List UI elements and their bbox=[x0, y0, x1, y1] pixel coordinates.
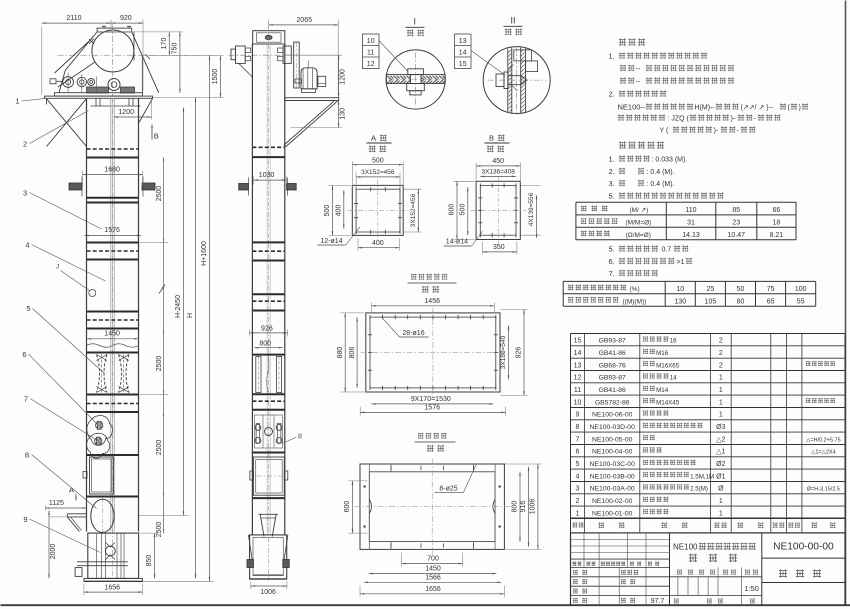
svg-text:7: 7 bbox=[576, 436, 580, 443]
svg-text:2: 2 bbox=[23, 140, 27, 149]
svg-text:10: 10 bbox=[574, 399, 582, 406]
svg-text:11: 11 bbox=[574, 387, 581, 394]
svg-text:806: 806 bbox=[349, 347, 356, 359]
svg-text:9: 9 bbox=[576, 412, 580, 419]
svg-text:31: 31 bbox=[687, 220, 695, 227]
svg-text:)-: )- bbox=[731, 116, 736, 123]
svg-text:1566: 1566 bbox=[425, 574, 441, 581]
svg-text:NE100-00-00: NE100-00-00 bbox=[773, 542, 834, 553]
svg-text:28-ø16: 28-ø16 bbox=[402, 330, 424, 337]
svg-text:15: 15 bbox=[574, 338, 582, 345]
svg-text:1: 1 bbox=[719, 387, 723, 394]
svg-text:6: 6 bbox=[22, 350, 26, 359]
svg-text:): ) bbox=[799, 105, 801, 112]
svg-text:3.: 3. bbox=[609, 179, 615, 188]
svg-text:1030: 1030 bbox=[259, 172, 275, 179]
svg-text:Ø=H-3.15/2.5: Ø=H-3.15/2.5 bbox=[807, 487, 840, 493]
svg-text:7: 7 bbox=[24, 395, 28, 404]
svg-text:2500: 2500 bbox=[156, 356, 163, 372]
svg-text:Ø: Ø bbox=[718, 486, 724, 493]
svg-text:0.7: 0.7 bbox=[662, 247, 672, 254]
svg-text:5.: 5. bbox=[609, 192, 615, 201]
svg-text:500: 500 bbox=[460, 204, 467, 216]
svg-text:10: 10 bbox=[367, 38, 375, 45]
svg-text:9: 9 bbox=[23, 515, 27, 524]
svg-text:600: 600 bbox=[344, 501, 351, 513]
svg-text:850: 850 bbox=[146, 555, 153, 567]
svg-text:Ø2: Ø2 bbox=[716, 461, 725, 468]
svg-text:H: H bbox=[187, 313, 194, 318]
svg-text:80: 80 bbox=[737, 298, 745, 305]
svg-text:△=H/0.2+5.75: △=H/0.2+5.75 bbox=[806, 437, 841, 443]
svg-text:10.47: 10.47 bbox=[728, 232, 746, 239]
svg-text:I: I bbox=[413, 17, 416, 27]
svg-text:3X180=540: 3X180=540 bbox=[500, 335, 507, 369]
svg-text:1125: 1125 bbox=[49, 500, 64, 507]
svg-text:1.: 1. bbox=[609, 52, 615, 61]
svg-text:1656: 1656 bbox=[425, 586, 441, 593]
svg-text:2.: 2. bbox=[609, 90, 615, 99]
svg-text:3X136=408: 3X136=408 bbox=[481, 168, 515, 175]
svg-text:NE100: NE100 bbox=[673, 543, 698, 552]
svg-text:M14: M14 bbox=[656, 387, 669, 394]
svg-text:3: 3 bbox=[23, 189, 27, 198]
svg-text:2: 2 bbox=[719, 362, 723, 369]
svg-text:NE100-05-00: NE100-05-00 bbox=[592, 436, 633, 443]
svg-text:1: 1 bbox=[576, 510, 580, 517]
svg-text:3X152=456: 3X152=456 bbox=[410, 193, 417, 227]
svg-text:600: 600 bbox=[449, 204, 456, 216]
svg-text:△1=△2X4: △1=△2X4 bbox=[811, 450, 836, 456]
svg-text:GB93-87: GB93-87 bbox=[599, 375, 626, 382]
svg-text:8.21: 8.21 bbox=[770, 232, 784, 239]
svg-text:>1: >1 bbox=[677, 259, 685, 266]
svg-text:NE100-04-00: NE100-04-00 bbox=[592, 449, 633, 456]
svg-text:5.: 5. bbox=[609, 245, 615, 254]
svg-text:((M)(M)): ((M)(M)) bbox=[623, 298, 647, 305]
svg-text:55: 55 bbox=[797, 298, 805, 305]
svg-text:2.5(M): 2.5(M) bbox=[690, 486, 708, 493]
svg-text:350: 350 bbox=[493, 244, 505, 251]
svg-text:4: 4 bbox=[25, 241, 29, 250]
svg-text:NE100-02-00: NE100-02-00 bbox=[592, 498, 633, 505]
svg-text:700: 700 bbox=[427, 556, 439, 563]
svg-text:1: 1 bbox=[719, 375, 723, 382]
svg-text:--: -- bbox=[636, 66, 641, 73]
svg-text:NE100--: NE100-- bbox=[618, 103, 646, 112]
svg-text:23: 23 bbox=[732, 220, 740, 227]
svg-text:1450: 1450 bbox=[104, 331, 120, 338]
svg-text:66: 66 bbox=[773, 207, 781, 214]
svg-text:130: 130 bbox=[674, 298, 686, 305]
svg-text:800: 800 bbox=[512, 501, 519, 513]
svg-text:2065: 2065 bbox=[296, 17, 312, 24]
svg-text:1: 1 bbox=[719, 399, 723, 406]
svg-text:B: B bbox=[154, 132, 159, 141]
svg-text:400: 400 bbox=[336, 205, 343, 217]
svg-text:M16: M16 bbox=[656, 350, 669, 357]
svg-text:4X139=556: 4X139=556 bbox=[528, 192, 535, 226]
svg-text:500: 500 bbox=[324, 205, 331, 217]
svg-text:130: 130 bbox=[339, 108, 346, 120]
svg-text:1006: 1006 bbox=[260, 589, 276, 596]
svg-text:400: 400 bbox=[372, 240, 384, 247]
svg-text:14.13: 14.13 bbox=[682, 232, 700, 239]
svg-text:15: 15 bbox=[459, 61, 467, 68]
svg-text:GB41-86: GB41-86 bbox=[599, 387, 626, 394]
svg-text:11: 11 bbox=[367, 49, 374, 56]
svg-text:14: 14 bbox=[670, 375, 677, 382]
svg-text:110: 110 bbox=[685, 207, 696, 214]
svg-text:170: 170 bbox=[161, 38, 168, 50]
svg-text:12: 12 bbox=[574, 375, 582, 382]
svg-text:105: 105 bbox=[705, 298, 717, 305]
svg-text:8: 8 bbox=[576, 424, 580, 431]
svg-text:A: A bbox=[69, 486, 74, 495]
svg-text:14: 14 bbox=[459, 49, 467, 56]
svg-text:3X152=456: 3X152=456 bbox=[361, 169, 395, 176]
svg-text:12: 12 bbox=[367, 61, 375, 68]
svg-text:NE100-03B-00: NE100-03B-00 bbox=[590, 473, 635, 480]
svg-text:1:50: 1:50 bbox=[744, 584, 759, 593]
svg-text:1: 1 bbox=[15, 97, 19, 106]
svg-text:18: 18 bbox=[773, 220, 781, 227]
svg-text:(%): (%) bbox=[630, 286, 640, 293]
svg-text:1680: 1680 bbox=[104, 167, 120, 174]
svg-text:(Ω/M=Ø): (Ω/M=Ø) bbox=[626, 232, 651, 239]
svg-text:14: 14 bbox=[574, 350, 582, 357]
svg-text:7.: 7. bbox=[609, 269, 615, 278]
svg-text:1576: 1576 bbox=[104, 227, 120, 234]
svg-text:16: 16 bbox=[670, 338, 677, 345]
svg-text:5: 5 bbox=[576, 461, 580, 468]
svg-text:M16X65: M16X65 bbox=[656, 362, 680, 369]
svg-text:2500: 2500 bbox=[156, 186, 163, 202]
svg-text:8-ø25: 8-ø25 bbox=[439, 485, 457, 492]
svg-text:A: A bbox=[371, 134, 376, 143]
svg-text:1.: 1. bbox=[609, 155, 615, 164]
svg-text:12-ø14: 12-ø14 bbox=[320, 238, 342, 245]
svg-text:Ø3: Ø3 bbox=[716, 424, 725, 431]
svg-text:II: II bbox=[510, 16, 515, 26]
svg-text:75: 75 bbox=[767, 286, 775, 293]
svg-text:65: 65 bbox=[767, 298, 775, 305]
svg-text:GB93-87: GB93-87 bbox=[599, 338, 626, 345]
svg-text:: 0.4 (M).: : 0.4 (M). bbox=[647, 169, 675, 176]
svg-text:14-ø14: 14-ø14 bbox=[446, 239, 468, 246]
svg-text:GB68-76: GB68-76 bbox=[599, 362, 626, 369]
svg-text:: 0.4 (M).: : 0.4 (M). bbox=[647, 181, 675, 188]
svg-text:M14X45: M14X45 bbox=[656, 399, 680, 406]
svg-text:NE100-03D-00: NE100-03D-00 bbox=[590, 424, 636, 431]
svg-text:3: 3 bbox=[576, 486, 580, 493]
svg-text:916: 916 bbox=[520, 501, 527, 513]
svg-text:1: 1 bbox=[719, 498, 723, 505]
svg-text:(↗↗/ ↗ )--: (↗↗/ ↗ )-- bbox=[741, 105, 774, 112]
svg-text:1200: 1200 bbox=[118, 109, 134, 116]
svg-text:2: 2 bbox=[719, 350, 723, 357]
svg-text:NE100-03C-00: NE100-03C-00 bbox=[590, 461, 636, 468]
svg-text:: JZQ (: : JZQ ( bbox=[668, 116, 690, 123]
svg-text:6.: 6. bbox=[609, 257, 615, 266]
svg-text:1456: 1456 bbox=[424, 298, 440, 305]
svg-text:1: 1 bbox=[719, 412, 723, 419]
svg-text:Ø1: Ø1 bbox=[716, 473, 725, 480]
svg-text:4: 4 bbox=[576, 473, 580, 480]
svg-text:500: 500 bbox=[372, 157, 384, 164]
svg-text:926: 926 bbox=[516, 347, 523, 359]
svg-text:2000: 2000 bbox=[50, 544, 57, 560]
svg-text:1006: 1006 bbox=[530, 499, 537, 515]
svg-text:880: 880 bbox=[337, 347, 344, 359]
svg-text:2.: 2. bbox=[609, 167, 615, 176]
svg-text:Y (: Y ( bbox=[660, 128, 669, 135]
svg-text:926: 926 bbox=[261, 325, 273, 332]
svg-text:)-: )- bbox=[714, 128, 719, 135]
svg-text:920: 920 bbox=[120, 15, 132, 22]
svg-text:2110: 2110 bbox=[66, 15, 81, 22]
svg-text:13: 13 bbox=[574, 362, 582, 369]
svg-text:NE100-06-00: NE100-06-00 bbox=[592, 412, 633, 419]
svg-text:: 0.033 (M).: : 0.033 (M). bbox=[652, 157, 688, 164]
svg-text:II: II bbox=[298, 434, 302, 441]
svg-text:2500: 2500 bbox=[156, 522, 163, 538]
svg-text:50: 50 bbox=[737, 286, 745, 293]
svg-text:1656: 1656 bbox=[105, 584, 121, 591]
svg-text:B: B bbox=[489, 134, 494, 143]
svg-text:100: 100 bbox=[795, 286, 807, 293]
svg-text:2: 2 bbox=[576, 498, 580, 505]
svg-text:(M/ ↗): (M/ ↗) bbox=[630, 207, 649, 214]
svg-text:H-2450: H-2450 bbox=[175, 295, 182, 318]
svg-text:1450: 1450 bbox=[425, 566, 441, 573]
svg-text:450: 450 bbox=[492, 158, 504, 165]
svg-text:9X170=1530: 9X170=1530 bbox=[411, 396, 451, 403]
svg-text:NE100-03A-00: NE100-03A-00 bbox=[590, 486, 635, 493]
svg-text:H(M)--: H(M)-- bbox=[695, 105, 716, 112]
svg-text:2: 2 bbox=[719, 338, 723, 345]
svg-text:1.5M,1M: 1.5M,1M bbox=[690, 473, 714, 480]
svg-text:△1: △1 bbox=[716, 449, 725, 456]
svg-text:97.7: 97.7 bbox=[651, 598, 665, 605]
svg-text:85: 85 bbox=[732, 207, 740, 214]
svg-text:25: 25 bbox=[707, 286, 715, 293]
svg-text:(M/M=Ø): (M/M=Ø) bbox=[626, 220, 652, 227]
svg-text:750: 750 bbox=[172, 43, 179, 55]
svg-text:△2: △2 bbox=[716, 436, 725, 443]
svg-text:1576: 1576 bbox=[424, 404, 440, 411]
svg-text:1500: 1500 bbox=[212, 69, 219, 85]
svg-text:GB41-86: GB41-86 bbox=[599, 350, 626, 357]
svg-text:1200: 1200 bbox=[339, 69, 346, 85]
svg-text:1: 1 bbox=[719, 510, 723, 517]
svg-text:NE100-01-00: NE100-01-00 bbox=[592, 510, 633, 517]
svg-text:J: J bbox=[56, 265, 59, 271]
svg-text:13: 13 bbox=[459, 38, 467, 45]
svg-text:2500: 2500 bbox=[156, 440, 163, 456]
svg-text:H+1600: H+1600 bbox=[201, 241, 208, 266]
svg-text:800: 800 bbox=[259, 340, 271, 347]
svg-text:8: 8 bbox=[25, 450, 29, 459]
svg-text:10: 10 bbox=[676, 286, 684, 293]
svg-text:6: 6 bbox=[576, 449, 580, 456]
svg-text:--: -- bbox=[636, 79, 641, 86]
svg-text:GB5782-86: GB5782-86 bbox=[595, 399, 630, 406]
svg-text:5: 5 bbox=[26, 304, 30, 313]
